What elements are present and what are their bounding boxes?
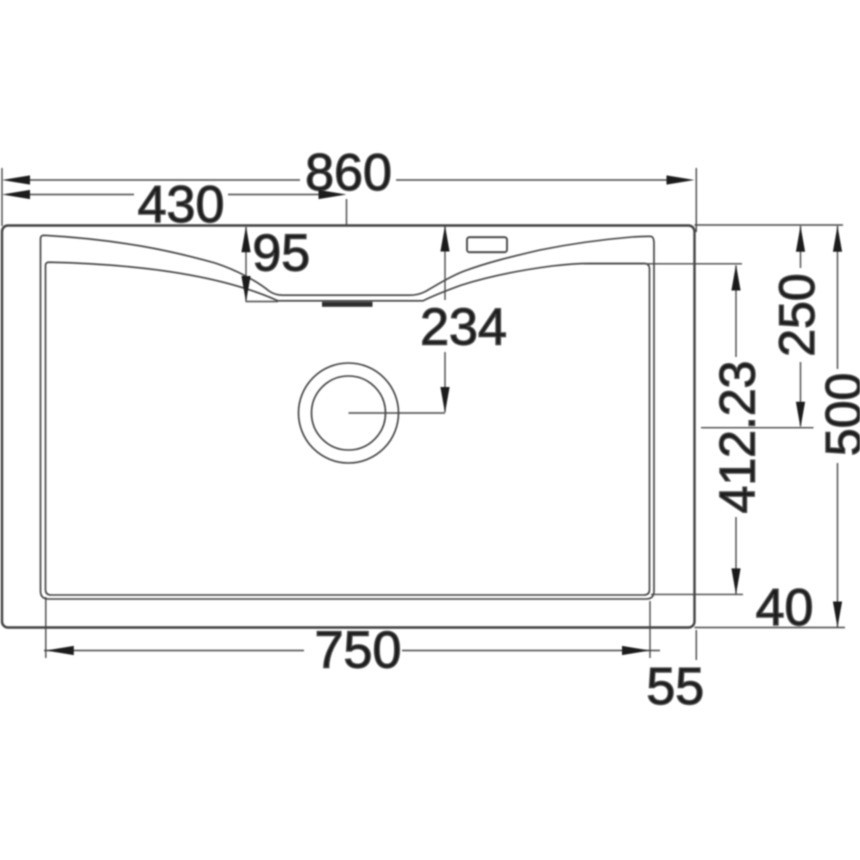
svg-text:412.23: 412.23 <box>709 361 765 514</box>
svg-text:55: 55 <box>646 658 704 716</box>
svg-text:40: 40 <box>756 579 814 637</box>
svg-text:500: 500 <box>815 373 860 456</box>
svg-text:430: 430 <box>138 176 225 234</box>
svg-text:860: 860 <box>305 144 392 202</box>
svg-text:95: 95 <box>252 225 310 283</box>
svg-text:750: 750 <box>315 622 402 680</box>
svg-text:250: 250 <box>769 273 825 356</box>
svg-text:234: 234 <box>420 299 507 357</box>
